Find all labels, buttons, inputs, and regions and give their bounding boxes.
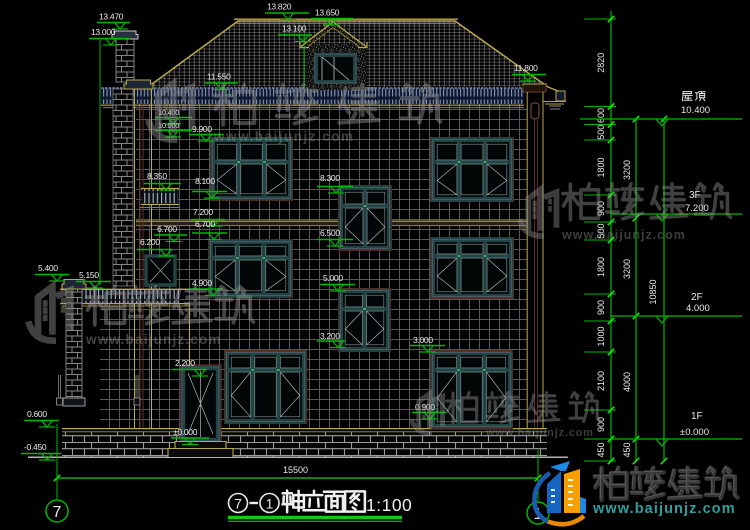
svg-text:450: 450: [596, 442, 606, 457]
svg-text:13.000: 13.000: [91, 27, 116, 37]
svg-text:8.100: 8.100: [195, 176, 215, 186]
svg-text:5.000: 5.000: [323, 273, 343, 283]
svg-text:6.200: 6.200: [140, 237, 160, 247]
svg-text:600: 600: [596, 108, 606, 123]
svg-text:7.200: 7.200: [685, 203, 709, 214]
svg-text:7: 7: [234, 496, 242, 512]
svg-text:1000: 1000: [596, 326, 606, 346]
svg-text:11.550: 11.550: [207, 72, 231, 82]
svg-text:6.700: 6.700: [157, 224, 177, 234]
svg-text:www.baijunjz.com: www.baijunjz.com: [213, 129, 355, 144]
svg-text:www.baijunjz.com: www.baijunjz.com: [592, 501, 736, 517]
svg-text:500: 500: [596, 125, 606, 140]
svg-text:2.200: 2.200: [175, 358, 195, 368]
svg-text:1:100: 1:100: [366, 495, 412, 515]
svg-text:6.700: 6.700: [195, 219, 215, 229]
svg-text:13.650: 13.650: [315, 8, 340, 18]
svg-text:13.470: 13.470: [99, 12, 124, 22]
svg-text:8.350: 8.350: [147, 171, 167, 181]
svg-text:10.400: 10.400: [681, 105, 710, 116]
svg-text:3.000: 3.000: [413, 335, 433, 345]
svg-text:www.baijunjz.com: www.baijunjz.com: [561, 228, 686, 242]
svg-text:1800: 1800: [596, 157, 606, 177]
svg-text:450: 450: [622, 442, 632, 457]
svg-text:15500: 15500: [283, 465, 308, 475]
svg-text:13.100: 13.100: [282, 24, 307, 34]
svg-text:8.300: 8.300: [320, 173, 340, 183]
svg-text:-0.450: -0.450: [24, 442, 47, 452]
svg-text:11.800: 11.800: [514, 63, 538, 73]
svg-text:2F: 2F: [691, 292, 703, 303]
svg-text:1800: 1800: [596, 257, 606, 277]
svg-text:3200: 3200: [622, 160, 632, 180]
svg-text:5.400: 5.400: [38, 263, 58, 273]
svg-text:5.150: 5.150: [79, 270, 99, 280]
svg-text:0.600: 0.600: [27, 409, 47, 419]
svg-text:1F: 1F: [691, 411, 703, 422]
svg-text:www.baijunjz.com: www.baijunjz.com: [85, 332, 222, 347]
svg-text:7.200: 7.200: [193, 207, 213, 217]
svg-text:2100: 2100: [596, 371, 606, 391]
svg-text:13.820: 13.820: [267, 2, 292, 12]
svg-text:7: 7: [53, 504, 62, 521]
svg-text:900: 900: [596, 300, 606, 315]
svg-text:1: 1: [266, 496, 274, 512]
svg-text:6.500: 6.500: [320, 228, 340, 238]
svg-text:www.baijunjz.com: www.baijunjz.com: [485, 427, 594, 439]
svg-text:2820: 2820: [596, 53, 606, 73]
svg-text:±0.000: ±0.000: [173, 427, 198, 437]
svg-text:10850: 10850: [648, 279, 658, 304]
svg-text:3200: 3200: [622, 259, 632, 279]
svg-text:3.200: 3.200: [320, 331, 340, 341]
svg-text:4000: 4000: [622, 372, 632, 392]
svg-text:4.000: 4.000: [686, 303, 710, 314]
svg-text:±0.000: ±0.000: [680, 427, 709, 438]
